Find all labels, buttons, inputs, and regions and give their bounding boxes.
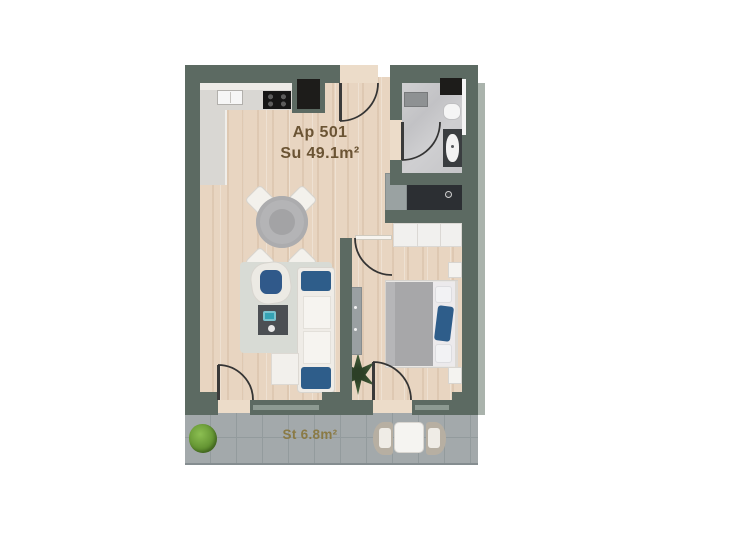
bathroom-door-arc [402,122,440,160]
bedroom-door-arc [355,238,392,275]
floor-plan-canvas: St 6.8m² [0,0,737,542]
entrance-door-arc [340,83,378,121]
floor-plan: St 6.8m² [185,65,485,465]
apartment-id: Ap 501 [260,123,380,144]
apartment-label: Ap 501 Su 49.1m² [260,123,380,165]
bedroom-terrace-door-arc [373,362,411,400]
living-terrace-door-arc [218,365,253,400]
apartment-area: Su 49.1m² [260,144,380,165]
